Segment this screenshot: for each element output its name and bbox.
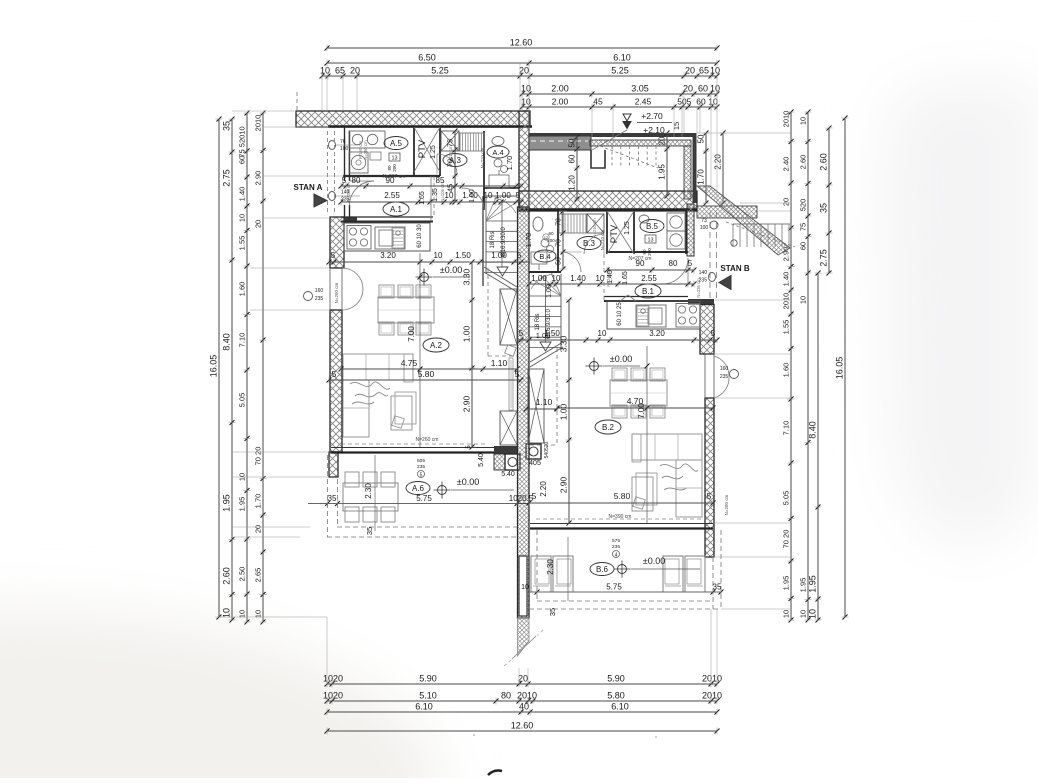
svg-text:100: 100 [700, 225, 709, 231]
svg-text:5.90: 5.90 [607, 674, 625, 684]
svg-text:65: 65 [335, 66, 345, 76]
svg-text:N=260 cm: N=260 cm [416, 437, 439, 443]
svg-text:80: 80 [501, 691, 511, 701]
svg-text:80: 80 [352, 176, 361, 185]
svg-text:8.40: 8.40 [222, 333, 232, 351]
svg-text:B.2: B.2 [602, 423, 615, 432]
svg-text:10: 10 [799, 610, 808, 618]
svg-text:±0.00: ±0.00 [610, 354, 632, 364]
svg-text:70 20: 70 20 [254, 447, 263, 466]
svg-text:3.20: 3.20 [380, 251, 396, 260]
svg-text:2.00: 2.00 [551, 84, 569, 94]
svg-text:10: 10 [238, 214, 247, 222]
svg-text:235: 235 [612, 544, 620, 550]
svg-text:1.70: 1.70 [505, 156, 514, 171]
svg-text:2.75: 2.75 [222, 169, 232, 187]
svg-text:2.75: 2.75 [819, 249, 829, 267]
svg-text:35: 35 [819, 203, 829, 213]
svg-text:75: 75 [446, 139, 455, 147]
svg-text:2.40: 2.40 [782, 157, 791, 172]
svg-text:20: 20 [683, 84, 693, 94]
svg-text:PTV: PTV [609, 224, 620, 243]
svg-text:5.40: 5.40 [501, 471, 515, 478]
svg-text:20: 20 [254, 220, 263, 228]
svg-text:7.10: 7.10 [782, 421, 791, 436]
svg-text:5.80: 5.80 [607, 691, 625, 701]
svg-text:2010: 2010 [517, 691, 537, 701]
svg-text:2010: 2010 [782, 111, 791, 128]
svg-text:35: 35 [548, 608, 557, 616]
svg-text:35: 35 [222, 121, 232, 131]
svg-text:6.10: 6.10 [611, 702, 629, 712]
svg-text:10: 10 [484, 191, 493, 200]
svg-text:5: 5 [332, 369, 337, 379]
svg-text:18 Ris: 18 Ris [490, 231, 496, 248]
svg-text:±0.00: ±0.00 [643, 556, 665, 566]
svg-text:6.10: 6.10 [613, 53, 631, 63]
svg-text:80: 80 [669, 259, 678, 268]
svg-text:2.60: 2.60 [799, 155, 808, 170]
svg-text:10: 10 [521, 97, 531, 107]
svg-text:N=297 cm: N=297 cm [383, 174, 406, 180]
svg-text:N=207 cm: N=207 cm [629, 256, 652, 262]
svg-text:B.3: B.3 [583, 239, 596, 248]
svg-text:200: 200 [647, 248, 652, 256]
svg-text:40: 40 [519, 702, 529, 712]
svg-text:5.05: 5.05 [238, 393, 247, 408]
svg-text:20: 20 [782, 198, 791, 206]
svg-text:2.55: 2.55 [384, 191, 400, 200]
svg-text:12: 12 [544, 235, 549, 240]
svg-text:16.05: 16.05 [835, 357, 845, 380]
svg-text:10: 10 [710, 66, 720, 76]
svg-text:2.30: 2.30 [364, 483, 373, 499]
svg-text:5.75: 5.75 [416, 494, 432, 503]
svg-text:PTV: PTV [417, 139, 428, 158]
svg-text:STAN B: STAN B [720, 264, 749, 273]
svg-text:5: 5 [687, 97, 692, 107]
svg-text:100: 100 [340, 146, 349, 152]
svg-text:505: 505 [417, 458, 425, 464]
svg-text:1.40: 1.40 [607, 270, 614, 284]
svg-text:5: 5 [420, 473, 423, 479]
svg-text:1.95: 1.95 [808, 575, 818, 593]
svg-text:N=260 cm: N=260 cm [334, 282, 339, 303]
svg-text:2.20: 2.20 [714, 154, 723, 170]
svg-text:10: 10 [552, 274, 561, 283]
svg-text:2.50: 2.50 [238, 567, 247, 582]
svg-text:2.55: 2.55 [641, 274, 657, 283]
svg-text:1.20: 1.20 [568, 175, 577, 191]
svg-text:5: 5 [331, 251, 336, 260]
svg-text:60: 60 [799, 242, 808, 250]
svg-text:A.4: A.4 [492, 148, 503, 157]
svg-text:±0.00: ±0.00 [457, 477, 479, 487]
svg-text:2.00: 2.00 [552, 97, 569, 107]
svg-text:1.60: 1.60 [782, 363, 791, 378]
svg-text:1.40: 1.40 [238, 187, 247, 202]
svg-text:35: 35 [365, 527, 374, 535]
svg-text:45: 45 [446, 184, 455, 192]
svg-text:5: 5 [688, 259, 693, 268]
svg-text:235: 235 [699, 278, 708, 284]
svg-text:10: 10 [799, 117, 808, 125]
svg-text:10: 10 [598, 329, 607, 338]
svg-text:5: 5 [707, 491, 712, 501]
svg-text:1.95: 1.95 [658, 164, 667, 180]
svg-text:60: 60 [548, 231, 554, 236]
svg-text:2.20: 2.20 [539, 481, 548, 497]
svg-text:10: 10 [521, 84, 531, 94]
svg-text:5: 5 [342, 176, 347, 185]
svg-text:7.10: 7.10 [238, 333, 247, 348]
svg-text:1.55: 1.55 [238, 236, 247, 251]
svg-text:2.90: 2.90 [254, 171, 263, 186]
svg-text:160: 160 [720, 366, 729, 372]
svg-text:3.30: 3.30 [559, 335, 569, 352]
svg-text:70: 70 [556, 218, 563, 226]
svg-text:1.00: 1.00 [531, 274, 547, 283]
svg-text:540520: 540520 [544, 441, 550, 458]
svg-text:1.00: 1.00 [462, 325, 472, 342]
svg-text:N=390 cm: N=390 cm [609, 514, 632, 520]
svg-text:35: 35 [328, 494, 337, 503]
svg-text:235: 235 [315, 296, 324, 302]
svg-text:16.05: 16.05 [209, 355, 219, 378]
svg-text:10: 10 [799, 296, 808, 304]
svg-text:7.00: 7.00 [407, 326, 416, 342]
svg-text:20: 20 [350, 66, 360, 76]
svg-text:2.65: 2.65 [254, 568, 263, 583]
svg-text:60: 60 [698, 84, 708, 94]
svg-text:60: 60 [238, 156, 247, 164]
svg-text:1.10: 1.10 [536, 397, 553, 407]
svg-text:20: 20 [685, 66, 695, 76]
svg-text:B.1: B.1 [642, 287, 655, 296]
svg-text:1.65: 1.65 [622, 271, 629, 285]
svg-text:A.5: A.5 [390, 139, 403, 148]
svg-text:1.70: 1.70 [697, 169, 706, 185]
svg-text:6.10: 6.10 [415, 702, 433, 712]
svg-text:1020: 1020 [323, 674, 343, 684]
svg-text:+2.70: +2.70 [641, 111, 663, 121]
svg-text:70: 70 [556, 239, 563, 247]
svg-text:50: 50 [556, 257, 563, 265]
svg-text:5.25: 5.25 [431, 66, 449, 76]
svg-text:76: 76 [340, 139, 346, 145]
svg-text:60 10 30: 60 10 30 [417, 224, 423, 248]
svg-text:5: 5 [711, 329, 716, 338]
svg-text:405: 405 [529, 460, 541, 467]
svg-text:N=210 cm: N=210 cm [600, 229, 605, 250]
svg-text:13: 13 [647, 238, 653, 244]
svg-text:1.00: 1.00 [546, 284, 553, 298]
svg-text:2010: 2010 [782, 293, 791, 310]
svg-text:60 10 25: 60 10 25 [617, 302, 623, 326]
svg-text:140: 140 [699, 270, 708, 276]
svg-text:5.90: 5.90 [419, 674, 437, 684]
svg-text:70 20: 70 20 [782, 530, 791, 549]
svg-text:10: 10 [434, 251, 443, 260]
svg-text:4: 4 [615, 553, 618, 559]
svg-text:1.95: 1.95 [799, 578, 808, 593]
svg-text:1.25: 1.25 [624, 221, 631, 235]
svg-text:20: 20 [519, 66, 529, 76]
svg-text:5.10: 5.10 [419, 691, 437, 701]
svg-text:5.80: 5.80 [418, 369, 435, 379]
svg-text:50: 50 [568, 138, 577, 147]
svg-text:1.65: 1.65 [419, 191, 426, 205]
svg-text:2.30: 2.30 [546, 559, 555, 575]
svg-text:6.50: 6.50 [418, 53, 436, 63]
svg-text:160: 160 [315, 288, 324, 294]
svg-text:75 52010: 75 52010 [238, 126, 247, 157]
svg-text:1.70: 1.70 [254, 494, 263, 509]
svg-text:2.90: 2.90 [559, 476, 569, 493]
svg-text:575: 575 [612, 538, 620, 544]
svg-text:1.70: 1.70 [524, 233, 533, 248]
svg-text:10: 10 [708, 97, 718, 107]
svg-text:1020: 1020 [323, 691, 343, 701]
svg-text:50: 50 [677, 97, 687, 107]
svg-text:N=260 cm: N=260 cm [724, 494, 729, 515]
svg-text:2010: 2010 [254, 115, 263, 132]
svg-text:520: 520 [799, 199, 808, 212]
svg-text:+2.10: +2.10 [643, 125, 665, 135]
svg-text:±0.00: ±0.00 [440, 265, 462, 275]
svg-text:5: 5 [519, 329, 524, 338]
svg-text:3.05: 3.05 [631, 84, 649, 94]
svg-text:20: 20 [518, 674, 528, 684]
svg-text:35: 35 [713, 583, 722, 592]
svg-text:10: 10 [808, 609, 818, 619]
svg-text:A.2: A.2 [430, 341, 443, 350]
svg-text:2.90: 2.90 [462, 395, 472, 412]
svg-text:1.00: 1.00 [495, 191, 511, 200]
svg-text:10: 10 [222, 608, 232, 618]
svg-text:20: 20 [658, 136, 667, 145]
svg-text:5.80: 5.80 [614, 491, 631, 501]
svg-text:1.25: 1.25 [430, 145, 437, 159]
svg-text:10: 10 [596, 274, 605, 283]
svg-text:10: 10 [782, 610, 791, 618]
svg-text:1.40: 1.40 [462, 191, 478, 200]
svg-text:B.6: B.6 [596, 565, 609, 574]
svg-text:A.6: A.6 [412, 484, 425, 493]
svg-text:N=210 cm: N=210 cm [592, 218, 597, 238]
svg-text:5.05: 5.05 [782, 491, 791, 506]
svg-text:50: 50 [697, 134, 706, 143]
svg-text:1.55: 1.55 [782, 320, 791, 335]
svg-text:20: 20 [254, 525, 263, 533]
svg-text:13: 13 [391, 156, 397, 162]
svg-text:1.35: 1.35 [432, 188, 439, 202]
svg-text:10: 10 [710, 84, 720, 94]
svg-text:5: 5 [532, 491, 537, 501]
svg-text:1.95: 1.95 [782, 576, 791, 591]
svg-text:1.95: 1.95 [222, 494, 232, 512]
svg-text:1.00: 1.00 [559, 403, 569, 420]
svg-text:1.50: 1.50 [455, 251, 471, 260]
svg-text:1.00: 1.00 [491, 251, 507, 260]
svg-text:2010: 2010 [702, 674, 722, 684]
svg-text:5.40: 5.40 [478, 453, 485, 467]
svg-text:5: 5 [515, 369, 520, 379]
svg-text:4.70: 4.70 [627, 396, 644, 406]
svg-text:60: 60 [568, 154, 577, 163]
svg-text:12.60: 12.60 [510, 38, 533, 48]
svg-text:A.1: A.1 [390, 205, 403, 214]
svg-text:B.5: B.5 [646, 222, 659, 231]
svg-text:235: 235 [417, 464, 425, 470]
svg-text:18 Ris: 18 Ris [535, 313, 541, 330]
svg-text:73: 73 [701, 218, 707, 224]
svg-text:1.60: 1.60 [238, 282, 247, 297]
svg-text:235: 235 [720, 374, 729, 380]
svg-text:1.95: 1.95 [238, 497, 247, 512]
svg-text:STAN A: STAN A [294, 183, 323, 192]
svg-text:70: 70 [446, 159, 455, 167]
svg-text:10: 10 [320, 66, 330, 76]
svg-text:2.60: 2.60 [819, 153, 829, 171]
svg-text:12.60: 12.60 [511, 721, 534, 731]
svg-text:5.25: 5.25 [611, 66, 629, 76]
svg-text:8.40: 8.40 [808, 421, 818, 439]
svg-text:N=250 cm: N=250 cm [363, 140, 368, 160]
svg-text:B.4: B.4 [539, 252, 550, 261]
svg-text:3.20: 3.20 [649, 329, 665, 338]
svg-text:140: 140 [341, 190, 350, 196]
svg-text:200: 200 [392, 164, 397, 172]
svg-text:1.40: 1.40 [782, 272, 791, 287]
svg-text:5.75: 5.75 [606, 583, 622, 592]
svg-text:4.75: 4.75 [401, 358, 418, 368]
svg-text:2010: 2010 [702, 691, 722, 701]
svg-text:45: 45 [593, 97, 603, 107]
svg-text:75: 75 [799, 223, 808, 231]
svg-text:N=210 cm: N=210 cm [480, 147, 485, 168]
svg-text:5: 5 [516, 191, 521, 200]
svg-text:65: 65 [699, 66, 709, 76]
svg-text:2.60: 2.60 [222, 567, 232, 585]
svg-text:2.45: 2.45 [635, 97, 652, 107]
svg-text:1.10: 1.10 [491, 358, 508, 368]
svg-text:15: 15 [672, 122, 681, 130]
svg-text:60: 60 [696, 97, 706, 107]
svg-text:1.40: 1.40 [570, 274, 586, 283]
svg-text:85: 85 [436, 176, 445, 185]
svg-text:5: 5 [517, 251, 522, 260]
svg-text:10: 10 [521, 584, 529, 591]
